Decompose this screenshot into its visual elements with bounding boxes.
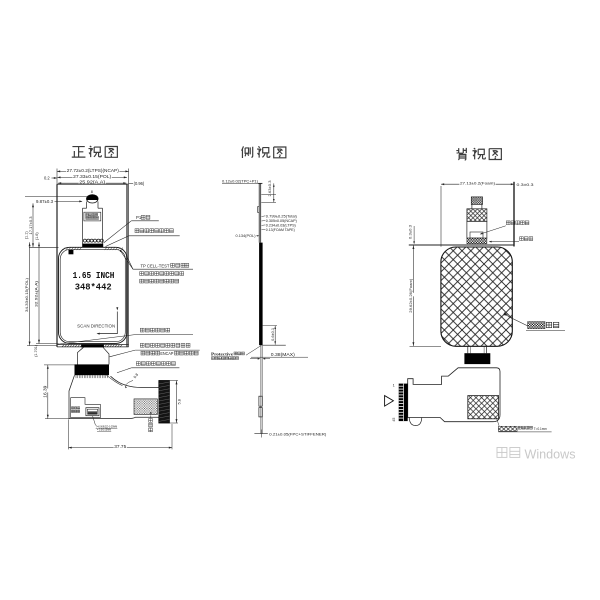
- svg-text:ENCAP: ENCAP: [160, 351, 173, 356]
- svg-text:9.87±0.3: 9.87±0.3: [36, 199, 54, 204]
- svg-text:0.3±0.3: 0.3±0.3: [517, 182, 535, 187]
- svg-text:0.38(MAX): 0.38(MAX): [271, 352, 296, 357]
- svg-text:TP CELL-TEST: TP CELL-TEST: [141, 263, 170, 268]
- svg-text:2.63±0.3: 2.63±0.3: [268, 181, 272, 197]
- svg-text:8: 8: [91, 190, 93, 194]
- svg-text:0.21±0.05(FPC+STIFFENER): 0.21±0.05(FPC+STIFFENER): [269, 433, 326, 437]
- svg-text:0.799±0.25(Total): 0.799±0.25(Total): [266, 214, 297, 218]
- svg-text:T=0.1mm: T=0.1mm: [534, 427, 547, 431]
- svg-text:27.13±0.2(Foam): 27.13±0.2(Foam): [460, 181, 496, 186]
- svg-text:37.75: 37.75: [114, 444, 127, 449]
- svg-text:27.72±0.2(LTPS)(NCAP): 27.72±0.2(LTPS)(NCAP): [67, 168, 120, 173]
- svg-text:0.6±0.1: 0.6±0.1: [271, 328, 275, 341]
- svg-text:1.65 INCH: 1.65 INCH: [73, 270, 115, 281]
- svg-text:0.3±0.3: 0.3±0.3: [409, 225, 413, 239]
- svg-text:(0.96): (0.96): [134, 181, 145, 186]
- svg-text:0.305±0.05(NCAP): 0.305±0.05(NCAP): [266, 219, 297, 223]
- svg-text:0.234±0.03(LTPS): 0.234±0.03(LTPS): [266, 223, 296, 227]
- svg-text:Windows: Windows: [525, 447, 576, 462]
- svg-text:1: 1: [393, 384, 395, 388]
- svg-text:SCAN DIRECTION: SCAN DIRECTION: [77, 323, 115, 328]
- svg-text:0.12±0.02(TPC+P1): 0.12±0.02(TPC+P1): [222, 179, 259, 183]
- svg-text:5.8: 5.8: [177, 399, 182, 404]
- svg-text:(1.1): (1.1): [25, 231, 29, 240]
- svg-text:(1.6): (1.6): [35, 232, 39, 241]
- svg-text:0.2: 0.2: [44, 175, 50, 180]
- svg-text:(1.701): (1.701): [34, 344, 38, 357]
- svg-text:0.13(FOAM TAPE): 0.13(FOAM TAPE): [266, 228, 295, 232]
- svg-text:45: 45: [392, 418, 396, 422]
- svg-text:= 0.5/0.05MM: = 0.5/0.05MM: [97, 428, 111, 432]
- svg-text:Protective: Protective: [211, 352, 233, 356]
- svg-text:27.33±0.15(POL): 27.33±0.15(POL): [73, 174, 112, 179]
- svg-text:34.33±0.15(POL): 34.33±0.15(POL): [24, 277, 29, 312]
- svg-text:32.92±(A.A): 32.92±(A.A): [34, 280, 39, 307]
- svg-text:348*442: 348*442: [75, 281, 112, 292]
- svg-text:29.62±0.26(Foam): 29.62±0.26(Foam): [409, 279, 413, 313]
- svg-text:16.39: 16.39: [42, 385, 47, 398]
- svg-text:0.134(POL): 0.134(POL): [236, 234, 256, 238]
